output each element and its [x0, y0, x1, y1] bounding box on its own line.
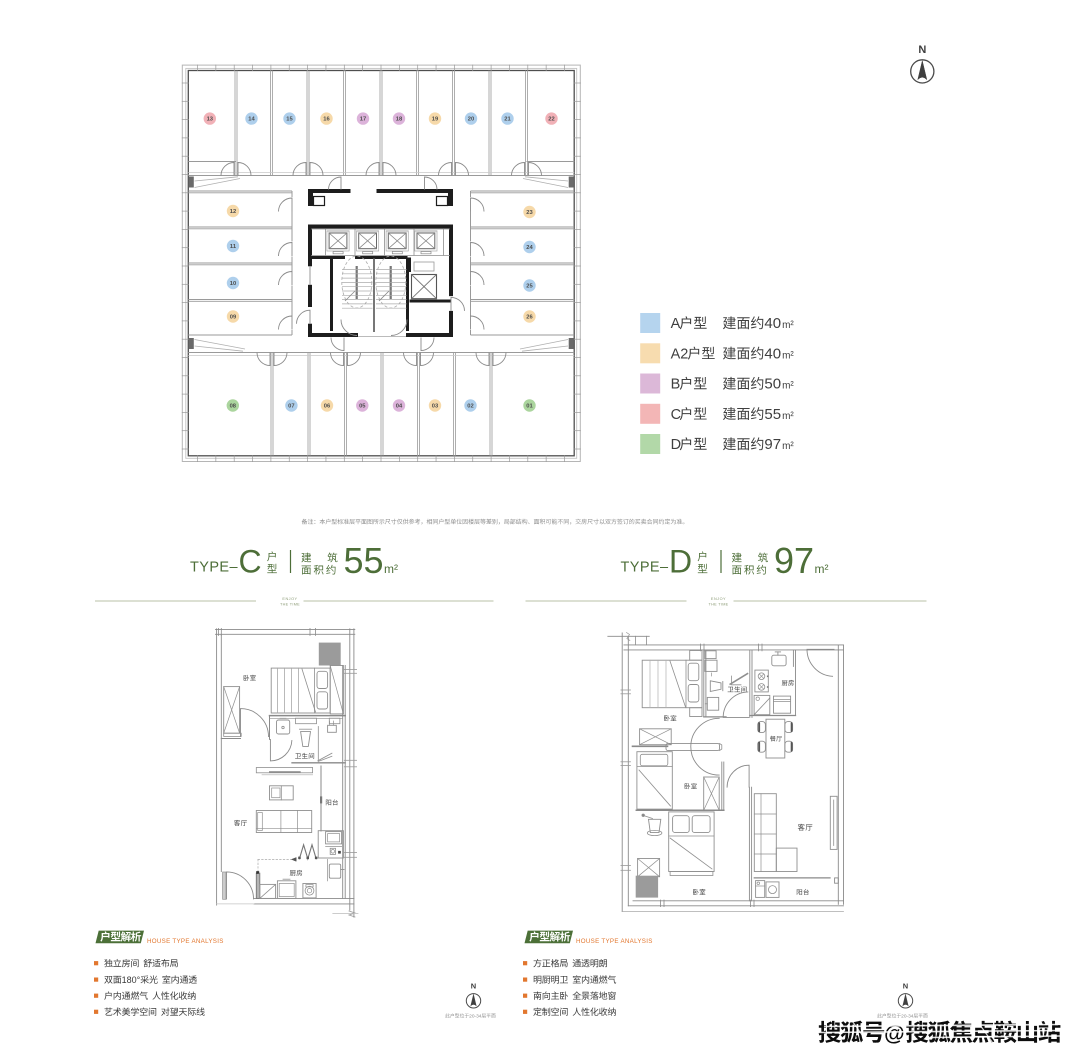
- svg-text:97: 97: [764, 436, 781, 453]
- svg-text:55: 55: [764, 406, 781, 423]
- svg-text:01: 01: [526, 404, 533, 410]
- svg-text:55: 55: [344, 540, 384, 581]
- svg-text:m²: m²: [782, 381, 794, 392]
- svg-text:ENJOY: ENJOY: [282, 597, 297, 601]
- svg-text:26: 26: [526, 315, 533, 321]
- svg-text:04: 04: [396, 404, 403, 410]
- svg-text:THE TIME: THE TIME: [280, 603, 300, 607]
- svg-text:ENJOY: ENJOY: [711, 597, 726, 601]
- svg-text:C: C: [671, 407, 681, 423]
- svg-text:B: B: [671, 377, 681, 393]
- svg-text:20-34: 20-34: [469, 1013, 482, 1019]
- svg-text:THE TIME: THE TIME: [708, 603, 728, 607]
- svg-text:09: 09: [230, 315, 237, 321]
- svg-text:HOUSE TYPE ANALYSIS: HOUSE TYPE ANALYSIS: [576, 938, 653, 945]
- svg-text:TYPE–: TYPE–: [621, 560, 669, 576]
- svg-text:40: 40: [764, 345, 781, 362]
- svg-text:07: 07: [288, 404, 294, 410]
- svg-text:C: C: [239, 544, 262, 580]
- svg-text:m²: m²: [782, 320, 794, 331]
- svg-text:08: 08: [230, 404, 237, 410]
- svg-text:16: 16: [323, 117, 330, 123]
- svg-text:15: 15: [286, 117, 293, 123]
- svg-text:24: 24: [526, 245, 533, 251]
- svg-text:N: N: [471, 981, 476, 990]
- svg-text:N: N: [918, 44, 926, 56]
- svg-text:06: 06: [324, 404, 331, 410]
- svg-text:m²: m²: [782, 411, 794, 422]
- svg-text:18: 18: [396, 117, 403, 123]
- svg-text:m²: m²: [815, 562, 829, 576]
- svg-text:19: 19: [432, 117, 439, 123]
- svg-text:17: 17: [360, 117, 366, 123]
- svg-text:m²: m²: [782, 350, 794, 361]
- svg-text:13: 13: [207, 117, 214, 123]
- svg-text:50: 50: [764, 376, 781, 393]
- svg-text:20: 20: [468, 117, 474, 123]
- svg-text:02: 02: [467, 404, 473, 410]
- svg-text:12: 12: [230, 209, 236, 215]
- svg-text:97: 97: [774, 540, 814, 581]
- svg-text:23: 23: [526, 210, 533, 216]
- svg-text:A2: A2: [671, 346, 689, 362]
- svg-text:40: 40: [764, 315, 781, 332]
- svg-text:HOUSE TYPE ANALYSIS: HOUSE TYPE ANALYSIS: [147, 938, 224, 945]
- svg-text:25: 25: [526, 284, 533, 290]
- svg-text:m²: m²: [384, 562, 398, 576]
- svg-text:N: N: [903, 981, 908, 990]
- svg-text:180°: 180°: [122, 975, 141, 985]
- svg-text:14: 14: [248, 117, 255, 123]
- svg-text:21: 21: [504, 117, 511, 123]
- svg-text:22: 22: [548, 117, 554, 123]
- svg-text:D: D: [671, 437, 681, 453]
- svg-text:03: 03: [432, 404, 439, 410]
- svg-text:11: 11: [230, 244, 237, 250]
- svg-text:A: A: [671, 316, 681, 332]
- svg-text:TYPE–: TYPE–: [190, 560, 238, 576]
- svg-text:10: 10: [230, 281, 236, 287]
- svg-text:20-34: 20-34: [901, 1013, 914, 1019]
- svg-text:05: 05: [359, 404, 366, 410]
- svg-text:D: D: [669, 544, 692, 580]
- svg-text:m²: m²: [782, 441, 794, 452]
